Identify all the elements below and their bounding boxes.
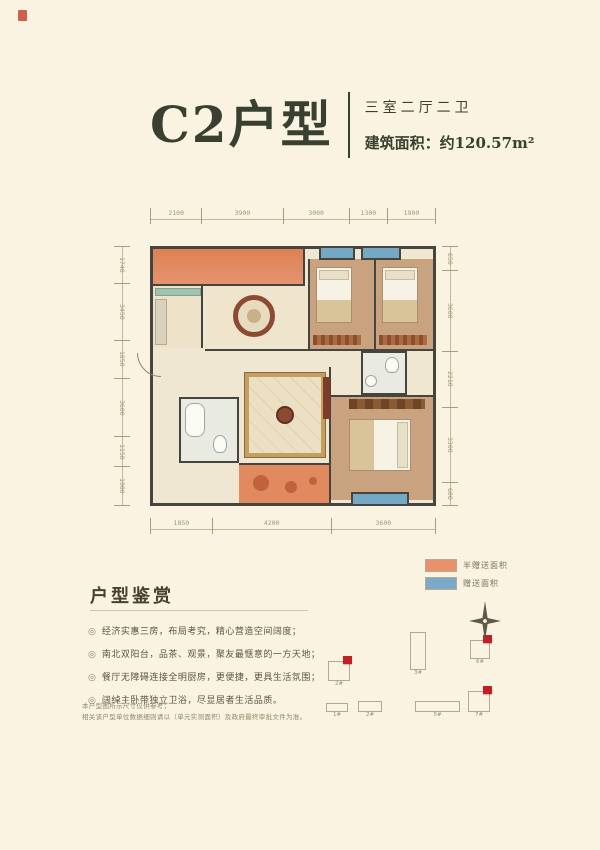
area-label: 建筑面积：约120.57m² bbox=[365, 132, 535, 153]
bathroom-top bbox=[361, 351, 407, 395]
master-bed bbox=[349, 419, 411, 471]
dimension-segment: 3600 bbox=[114, 378, 130, 436]
dimension-label: 3300 bbox=[445, 437, 455, 453]
dimension-segment: 1850 bbox=[114, 340, 130, 378]
dimension-label: 3600 bbox=[445, 303, 455, 319]
building-label: 2# bbox=[366, 712, 374, 718]
dimension-label: 3450 bbox=[117, 304, 127, 320]
room-count-label: 三室二厅二卫 bbox=[365, 97, 535, 117]
dimension-label: 3600 bbox=[376, 518, 392, 528]
disclaimer-line: 相关该户型单位数据细则请以（单元实测面积）及政府最终审批文件为准。 bbox=[82, 712, 306, 723]
building-outline: 7# bbox=[468, 691, 490, 712]
legend-label: 半赠送面积 bbox=[463, 560, 508, 571]
corner-logo bbox=[18, 10, 27, 21]
building-label: 1# bbox=[333, 712, 341, 718]
dimension-row-top: 21003900300013001900 bbox=[150, 208, 436, 224]
bay-window-north-1 bbox=[319, 246, 355, 260]
building-outline: 1# bbox=[326, 703, 348, 712]
dimension-label: 1150 bbox=[117, 444, 127, 460]
bay-window-north-2 bbox=[361, 246, 401, 260]
dimension-segment: 2210 bbox=[442, 351, 458, 407]
rug-medallion bbox=[276, 406, 294, 424]
dimension-label: 2210 bbox=[445, 371, 455, 387]
unit-marker bbox=[483, 686, 492, 694]
dimension-label: 650 bbox=[445, 253, 455, 265]
building-outline: 3# bbox=[410, 632, 426, 670]
dimension-column-left: 174034501850360011501900 bbox=[114, 246, 130, 506]
dimension-label: 3000 bbox=[308, 208, 324, 218]
dimension-segment: 1150 bbox=[114, 436, 130, 466]
building-label: 5# bbox=[433, 712, 441, 718]
dimension-label: 1900 bbox=[404, 208, 420, 218]
dimension-row-bottom: 185042003600 bbox=[150, 518, 436, 534]
dimension-segment: 1850 bbox=[150, 518, 212, 534]
dimension-label: 2100 bbox=[168, 208, 184, 218]
toilet-icon bbox=[213, 435, 227, 453]
dimension-segment: 3450 bbox=[114, 283, 130, 340]
dimension-segment: 3600 bbox=[442, 270, 458, 350]
dimension-label: 600 bbox=[445, 488, 455, 500]
feature-text: 南北双阳台，品茶、观景，聚友最惬意的一方天地； bbox=[102, 649, 321, 661]
header-subtitles: 三室二厅二卫 建筑面积：约120.57m² bbox=[365, 94, 535, 156]
header: C2户型 三室二厅二卫 建筑面积：约120.57m² bbox=[150, 92, 534, 158]
toilet-icon bbox=[385, 357, 399, 373]
sink-icon bbox=[365, 375, 377, 387]
dimension-label: 4200 bbox=[264, 518, 280, 528]
building-outline: 6# bbox=[470, 640, 490, 659]
bed-left bbox=[316, 267, 352, 323]
building-label: 7# bbox=[475, 712, 483, 718]
building-label: 6# bbox=[476, 659, 484, 665]
feature-text: 餐厅无障碍连接全明厨房，更便捷，更具生活氛围； bbox=[102, 672, 321, 684]
dimension-segment: 4200 bbox=[212, 518, 331, 534]
dimension-column-right: 650360022103300600 bbox=[442, 246, 458, 506]
disclaimer-line: 本户型图所示尺寸仅供参考； bbox=[82, 701, 306, 712]
dining-table bbox=[233, 295, 275, 337]
legend-label: 赠送面积 bbox=[463, 578, 499, 589]
dimension-label: 3600 bbox=[117, 400, 127, 416]
bed-right bbox=[382, 267, 418, 323]
dimension-segment: 1740 bbox=[114, 246, 130, 283]
kitchen-appliances bbox=[155, 299, 167, 345]
legend-item: 半赠送面积 bbox=[425, 559, 508, 572]
bullet-icon: ◎ bbox=[88, 672, 96, 684]
dimension-segment: 1900 bbox=[114, 466, 130, 506]
feature-text: 经济实惠三房，布局考究，精心营造空间阔度； bbox=[102, 626, 302, 638]
dimension-segment: 3900 bbox=[201, 208, 282, 224]
bathtub-icon bbox=[185, 403, 205, 437]
building-outline: 2# bbox=[358, 701, 382, 712]
tv-cabinet bbox=[323, 377, 330, 419]
bay-window-south bbox=[351, 492, 409, 506]
building-outline: 5# bbox=[415, 701, 460, 712]
legend-item: 赠送面积 bbox=[425, 577, 508, 590]
dimension-segment: 3300 bbox=[442, 407, 458, 482]
legend-swatch bbox=[425, 577, 457, 590]
compass-icon bbox=[468, 600, 502, 642]
dimension-label: 3900 bbox=[235, 208, 251, 218]
wardrobe bbox=[349, 399, 425, 409]
dimension-label: 1850 bbox=[174, 518, 190, 528]
floor-plan bbox=[150, 246, 436, 506]
rug-right bbox=[379, 335, 427, 345]
dimension-label: 1850 bbox=[117, 351, 127, 367]
dimension-segment: 3000 bbox=[283, 208, 349, 224]
dimension-segment: 600 bbox=[442, 482, 458, 506]
rug-left bbox=[313, 335, 361, 345]
dimension-label: 1740 bbox=[117, 257, 127, 273]
bullet-icon: ◎ bbox=[88, 649, 96, 661]
header-divider bbox=[348, 92, 350, 158]
building-label: 2# bbox=[335, 681, 343, 687]
dimension-segment: 3600 bbox=[331, 518, 436, 534]
north-balcony bbox=[153, 249, 305, 286]
dimension-segment: 1300 bbox=[349, 208, 387, 224]
building-outline: 2# bbox=[328, 661, 350, 681]
bullet-icon: ◎ bbox=[88, 626, 96, 638]
dimension-label: 1900 bbox=[117, 478, 127, 494]
building-label: 3# bbox=[414, 670, 422, 676]
dimension-label: 1300 bbox=[361, 208, 377, 218]
dimension-segment: 2100 bbox=[150, 208, 201, 224]
disclaimer: 本户型图所示尺寸仅供参考；相关该户型单位数据细则请以（单元实测面积）及政府最终审… bbox=[82, 701, 306, 723]
legend-swatch bbox=[425, 559, 457, 572]
south-balcony bbox=[239, 463, 331, 503]
gift-area-legend: 半赠送面积赠送面积 bbox=[425, 559, 508, 595]
section-underline bbox=[90, 610, 308, 611]
unit-marker bbox=[343, 656, 352, 664]
unit-title: C2户型 bbox=[150, 100, 333, 150]
flyer-page: C2户型 三室二厅二卫 建筑面积：约120.57m² 2100390030001… bbox=[0, 0, 600, 850]
section-title: 户型鉴赏 bbox=[90, 582, 174, 608]
dimension-segment: 650 bbox=[442, 246, 458, 270]
dimension-segment: 1900 bbox=[387, 208, 436, 224]
entry-door-arc bbox=[137, 353, 161, 377]
kitchen-counter bbox=[155, 288, 201, 296]
